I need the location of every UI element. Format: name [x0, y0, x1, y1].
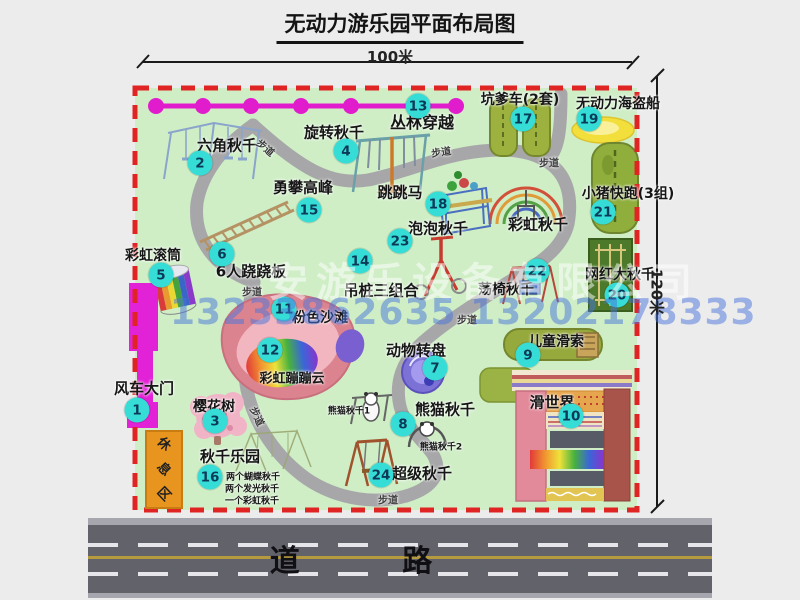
badge-17: 17 [511, 107, 536, 132]
badge-20: 20 [605, 283, 630, 308]
badge-1: 1 [125, 398, 150, 423]
label-rotating-swing: 旋转秋千 [304, 122, 364, 143]
badge-9: 9 [516, 343, 541, 368]
badge-19: 19 [577, 107, 602, 132]
dimension-right-label: 120米 [647, 269, 668, 315]
rest-area-char: 息 [155, 460, 173, 478]
label-swing-park: 秋千乐园 [200, 446, 260, 467]
label-pile-combo: 吊桩三组合 [343, 280, 418, 301]
badge-5: 5 [149, 263, 174, 288]
label-swing-note-3: 一个彩虹秋千 [225, 494, 279, 507]
label-trail-2: 步道 [430, 142, 452, 160]
label-panda-swing-2: 熊猫秋千2 [420, 440, 462, 453]
label-trail-7: 步道 [378, 492, 398, 507]
badge-6: 6 [210, 242, 235, 267]
road-edge-bottom [88, 593, 712, 598]
badge-14: 14 [348, 249, 373, 274]
label-panda-swing: 熊猫秋千 [415, 399, 475, 420]
badge-15: 15 [297, 198, 322, 223]
badge-2: 2 [188, 151, 213, 176]
badge-16: 16 [198, 465, 223, 490]
label-chair-swing: 荡椅秋千 [478, 279, 534, 299]
badge-21: 21 [591, 200, 616, 225]
badge-3: 3 [203, 409, 228, 434]
label-jumping-horse: 跳跳马 [377, 182, 422, 203]
label-trail-5: 步道 [457, 312, 477, 327]
label-bouncing-cloud: 彩虹蹦蹦云 [259, 368, 324, 387]
rest-area-char: 区 [155, 485, 173, 503]
badge-23: 23 [388, 229, 413, 254]
rest-area-char: 休 [155, 435, 173, 453]
label-trail-3: 步道 [539, 155, 559, 170]
label-windmill-gate: 风车大门 [114, 378, 174, 399]
badge-24: 24 [369, 463, 394, 488]
label-super-swing: 超级秋千 [392, 463, 452, 484]
rest-area-box: 休息区 [145, 430, 183, 509]
badge-8: 8 [391, 412, 416, 437]
label-pink-beach: 粉色沙滩 [292, 307, 348, 327]
label-climbing-peak: 勇攀高峰 [273, 177, 333, 198]
label-rainbow-roller: 彩虹滚筒 [125, 245, 181, 265]
label-net-swing: 网红大秋千 [585, 264, 655, 284]
park-layout-screenshot: 无动力游乐园平面布局图 100米 120米 [0, 0, 800, 600]
slide-world-shape [512, 370, 632, 501]
badge-12: 12 [258, 338, 283, 363]
road-edge-top [88, 518, 712, 525]
label-trail-4: 步道 [242, 284, 262, 299]
badge-13: 13 [406, 94, 431, 119]
badge-4: 4 [334, 139, 359, 164]
page-title: 无动力游乐园平面布局图 [277, 8, 524, 44]
label-piggy-run: 小猪快跑(3组) [582, 183, 675, 203]
label-rainbow-swing: 彩虹秋千 [508, 214, 568, 235]
label-bubble-swing: 泡泡秋千 [408, 218, 468, 239]
label-panda-swing-1: 熊猫秋千1 [328, 404, 370, 417]
badge-22: 22 [525, 259, 550, 284]
dimension-top-label: 100米 [367, 46, 413, 67]
badge-18: 18 [426, 192, 451, 217]
badge-11: 11 [272, 297, 297, 322]
badge-7: 7 [423, 356, 448, 381]
road-label: 道 路 [270, 536, 478, 580]
badge-10: 10 [559, 404, 584, 429]
